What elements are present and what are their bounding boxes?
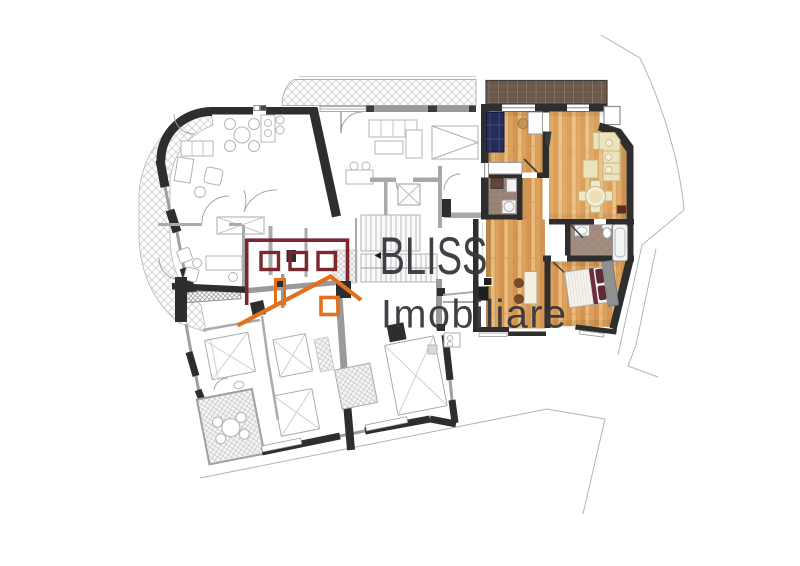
svg-text:BLISS: BLISS — [380, 226, 488, 286]
